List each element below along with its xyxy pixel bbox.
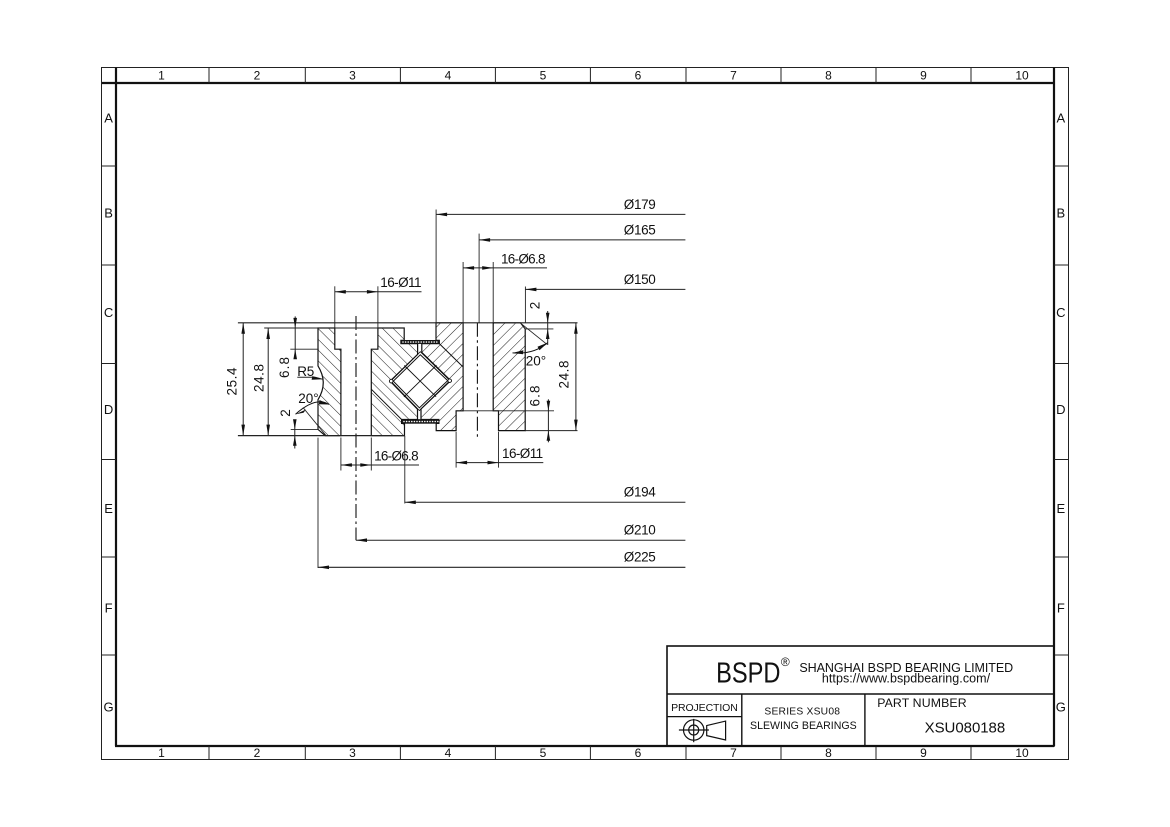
svg-text:Ø165: Ø165 (624, 222, 656, 237)
svg-text:16-Ø6.8: 16-Ø6.8 (501, 251, 546, 266)
svg-text:Ø150: Ø150 (624, 272, 656, 287)
svg-text:E: E (1056, 501, 1065, 516)
svg-text:®: ® (781, 655, 790, 669)
svg-text:SERIES XSU08: SERIES XSU08 (764, 706, 840, 717)
svg-text:3: 3 (349, 69, 356, 83)
svg-text:8: 8 (825, 69, 832, 83)
svg-text:BSPD: BSPD (716, 657, 780, 689)
svg-text:16-Ø11: 16-Ø11 (380, 275, 421, 290)
svg-text:2: 2 (254, 746, 261, 760)
svg-text:PROJECTION: PROJECTION (671, 702, 738, 714)
svg-text:E: E (104, 501, 113, 516)
svg-text:2: 2 (254, 69, 261, 83)
svg-text:A: A (1056, 111, 1065, 126)
svg-text:4: 4 (445, 746, 452, 760)
svg-text:9: 9 (920, 69, 927, 83)
svg-text:24.8: 24.8 (557, 361, 572, 389)
svg-text:6: 6 (635, 746, 642, 760)
svg-text:7: 7 (730, 746, 737, 760)
svg-text:16-Ø6.8: 16-Ø6.8 (374, 448, 419, 463)
svg-text:3: 3 (349, 746, 356, 760)
svg-text:16-Ø11: 16-Ø11 (502, 446, 543, 461)
svg-text:24.8: 24.8 (251, 364, 266, 392)
svg-text:5: 5 (540, 69, 547, 83)
svg-text:B: B (1056, 205, 1065, 220)
svg-text:8: 8 (825, 746, 832, 760)
svg-text:6.8: 6.8 (527, 386, 542, 407)
svg-text:F: F (105, 600, 113, 615)
svg-text:20°: 20° (526, 354, 546, 369)
svg-text:7: 7 (730, 69, 737, 83)
svg-text:4: 4 (445, 69, 452, 83)
svg-text:A: A (104, 111, 113, 126)
svg-text:PART NUMBER: PART NUMBER (877, 696, 967, 710)
svg-text:Ø179: Ø179 (624, 197, 656, 212)
svg-text:D: D (1056, 402, 1065, 417)
svg-text:G: G (104, 699, 114, 714)
svg-text:2: 2 (278, 409, 293, 417)
svg-text:R5: R5 (297, 364, 314, 379)
svg-text:C: C (104, 305, 113, 320)
svg-text:Ø210: Ø210 (624, 523, 656, 538)
svg-text:10: 10 (1015, 746, 1029, 760)
svg-text:2: 2 (528, 302, 543, 310)
svg-text:5: 5 (540, 746, 547, 760)
svg-text:F: F (1057, 600, 1065, 615)
svg-text:XSU080188: XSU080188 (925, 719, 1006, 736)
svg-text:https://www.bspdbearing.com/: https://www.bspdbearing.com/ (822, 672, 991, 686)
svg-text:6.8: 6.8 (277, 357, 292, 378)
svg-text:B: B (104, 205, 113, 220)
svg-text:1: 1 (158, 69, 165, 83)
svg-text:G: G (1056, 699, 1066, 714)
svg-text:10: 10 (1015, 69, 1029, 83)
svg-text:D: D (104, 402, 113, 417)
svg-text:20°: 20° (298, 391, 318, 406)
svg-text:25.4: 25.4 (225, 367, 240, 395)
svg-text:Ø194: Ø194 (624, 485, 656, 500)
svg-text:1: 1 (158, 746, 165, 760)
svg-text:Ø225: Ø225 (624, 550, 656, 565)
svg-text:9: 9 (920, 746, 927, 760)
svg-text:SLEWING BEARINGS: SLEWING BEARINGS (750, 720, 857, 732)
svg-text:C: C (1056, 305, 1065, 320)
svg-text:6: 6 (635, 69, 642, 83)
